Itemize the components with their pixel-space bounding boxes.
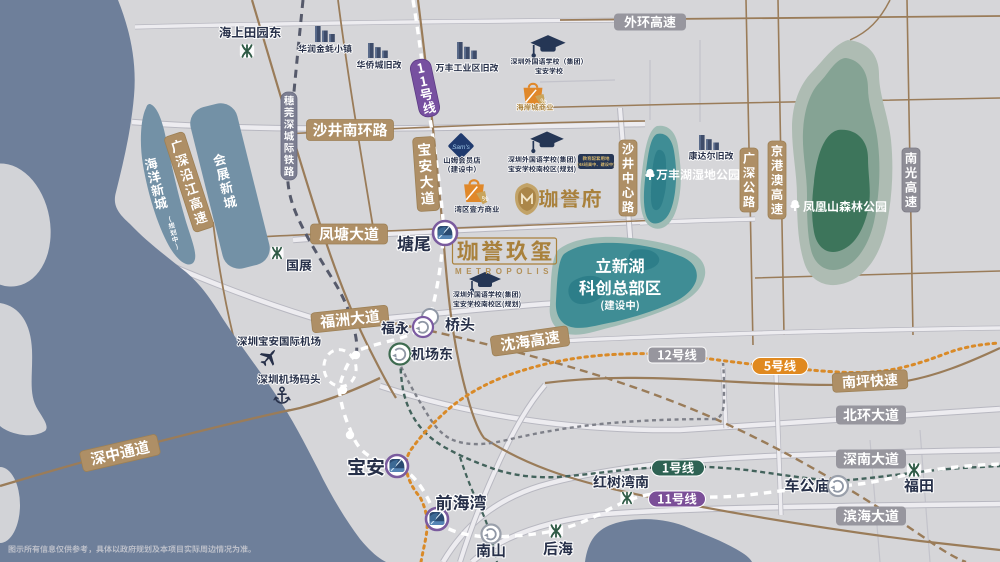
- svg-text:Sam's: Sam's: [452, 144, 471, 151]
- svg-text:%: %: [482, 194, 489, 203]
- svg-text:METROPOLIS: METROPOLIS: [455, 267, 553, 276]
